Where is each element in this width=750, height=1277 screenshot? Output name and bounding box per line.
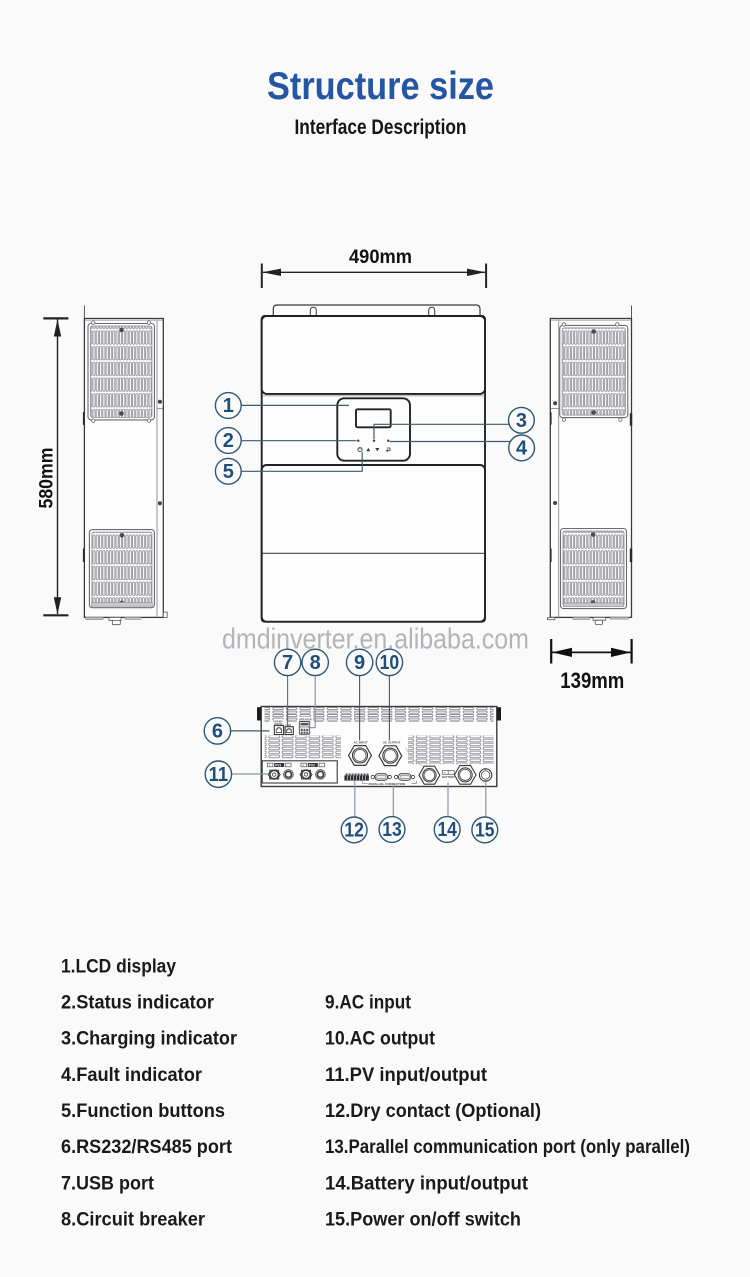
svg-text:580mm: 580mm: [37, 448, 58, 509]
svg-text:9: 9: [354, 652, 365, 674]
svg-text:2: 2: [223, 430, 234, 452]
svg-text:PV2: PV2: [309, 763, 315, 767]
svg-text:14.Battery input/output: 14.Battery input/output: [325, 1172, 528, 1194]
svg-text:12.Dry contact (Optional): 12.Dry contact (Optional): [325, 1100, 541, 1122]
svg-text:2.Status indicator: 2.Status indicator: [61, 992, 214, 1014]
svg-text:AC OUTPUT: AC OUTPUT: [383, 740, 401, 744]
svg-text:+: +: [302, 763, 304, 767]
svg-text:490mm: 490mm: [349, 247, 412, 268]
svg-text:8: 8: [310, 652, 321, 674]
svg-text:7.USB port: 7.USB port: [61, 1172, 154, 1194]
svg-text:14: 14: [437, 819, 457, 841]
svg-text:AC INPUT: AC INPUT: [354, 740, 368, 744]
svg-text:4: 4: [516, 437, 528, 459]
svg-text:15: 15: [475, 819, 495, 841]
svg-text:10: 10: [380, 652, 400, 674]
svg-text:3.Charging indicator: 3.Charging indicator: [61, 1028, 237, 1050]
svg-text:Interface Description: Interface Description: [295, 115, 467, 139]
svg-text:8.Circuit breaker: 8.Circuit breaker: [61, 1208, 205, 1230]
svg-text:3: 3: [516, 410, 527, 432]
svg-text:-: -: [321, 763, 322, 767]
svg-text:USB: USB: [286, 723, 292, 727]
svg-text:dmdinverter.en.alibaba.com: dmdinverter.en.alibaba.com: [222, 624, 529, 656]
svg-text:PV1: PV1: [275, 763, 281, 767]
svg-text:4.Fault indicator: 4.Fault indicator: [61, 1064, 202, 1086]
svg-text:Structure size: Structure size: [267, 65, 494, 108]
svg-text:BREAKER: BREAKER: [299, 718, 312, 721]
svg-text:11.PV input/output: 11.PV input/output: [325, 1064, 487, 1086]
svg-text:5: 5: [223, 461, 234, 483]
svg-text:PARALLEL CONNECTION: PARALLEL CONNECTION: [369, 782, 406, 786]
svg-text:7: 7: [282, 652, 293, 674]
svg-text:11: 11: [209, 764, 229, 786]
svg-text:139mm: 139mm: [560, 668, 624, 693]
svg-text:12: 12: [344, 819, 364, 841]
svg-text:10.AC output: 10.AC output: [325, 1028, 435, 1050]
svg-text:6: 6: [212, 721, 223, 743]
svg-text:5.Function buttons: 5.Function buttons: [61, 1100, 225, 1122]
svg-text:13: 13: [382, 819, 402, 841]
svg-text:6.RS232/RS485 port: 6.RS232/RS485 port: [61, 1136, 232, 1158]
svg-text:13.Parallel communication port: 13.Parallel communication port (only par…: [325, 1136, 690, 1158]
svg-text:BATTERY: BATTERY: [442, 775, 455, 779]
svg-text:9.AC input: 9.AC input: [325, 992, 411, 1014]
svg-text:-: -: [287, 763, 288, 767]
svg-text:1: 1: [223, 395, 234, 417]
svg-text:1.LCD display: 1.LCD display: [61, 955, 176, 977]
svg-text:15.Power on/off switch: 15.Power on/off switch: [325, 1208, 521, 1230]
svg-text:+: +: [269, 763, 271, 767]
